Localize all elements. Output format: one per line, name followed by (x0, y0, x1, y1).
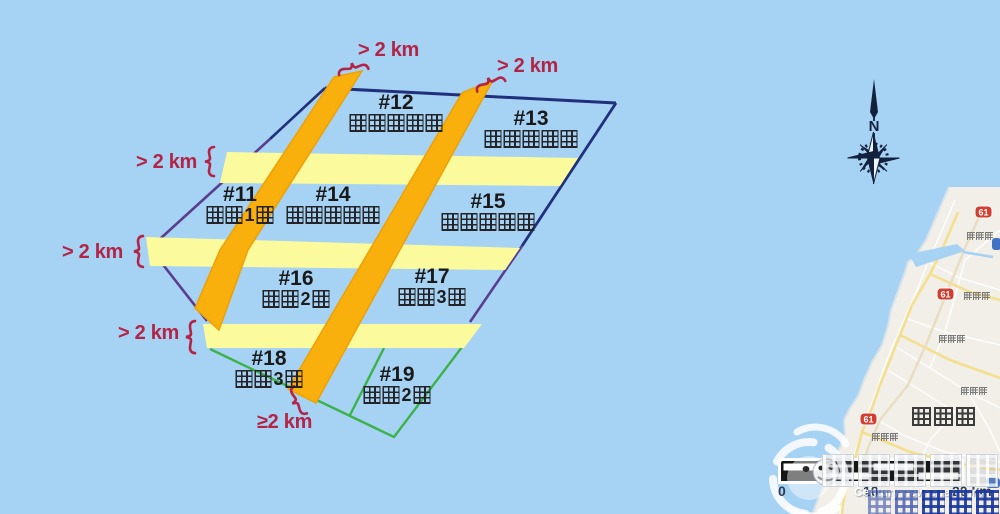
svg-text:61: 61 (863, 415, 873, 425)
svg-text:61: 61 (978, 208, 988, 218)
svg-text:61: 61 (940, 290, 950, 300)
